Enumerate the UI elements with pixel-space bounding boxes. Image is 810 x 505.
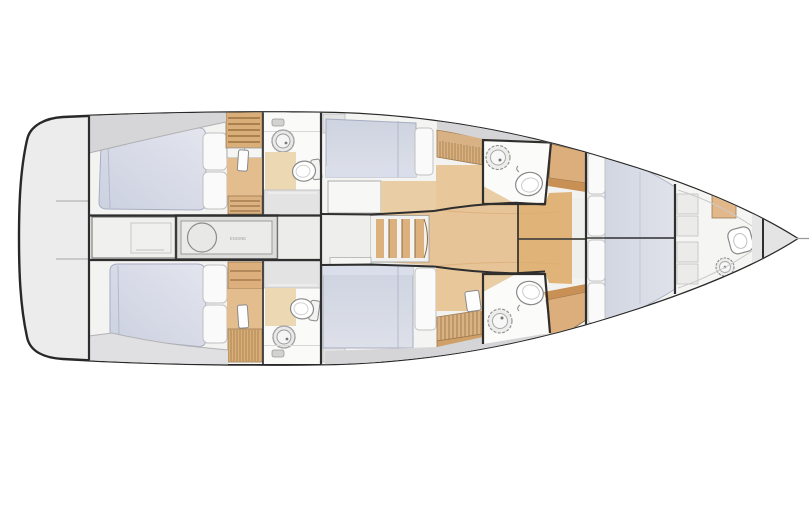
svg-text:ENGINE: ENGINE (230, 236, 246, 241)
